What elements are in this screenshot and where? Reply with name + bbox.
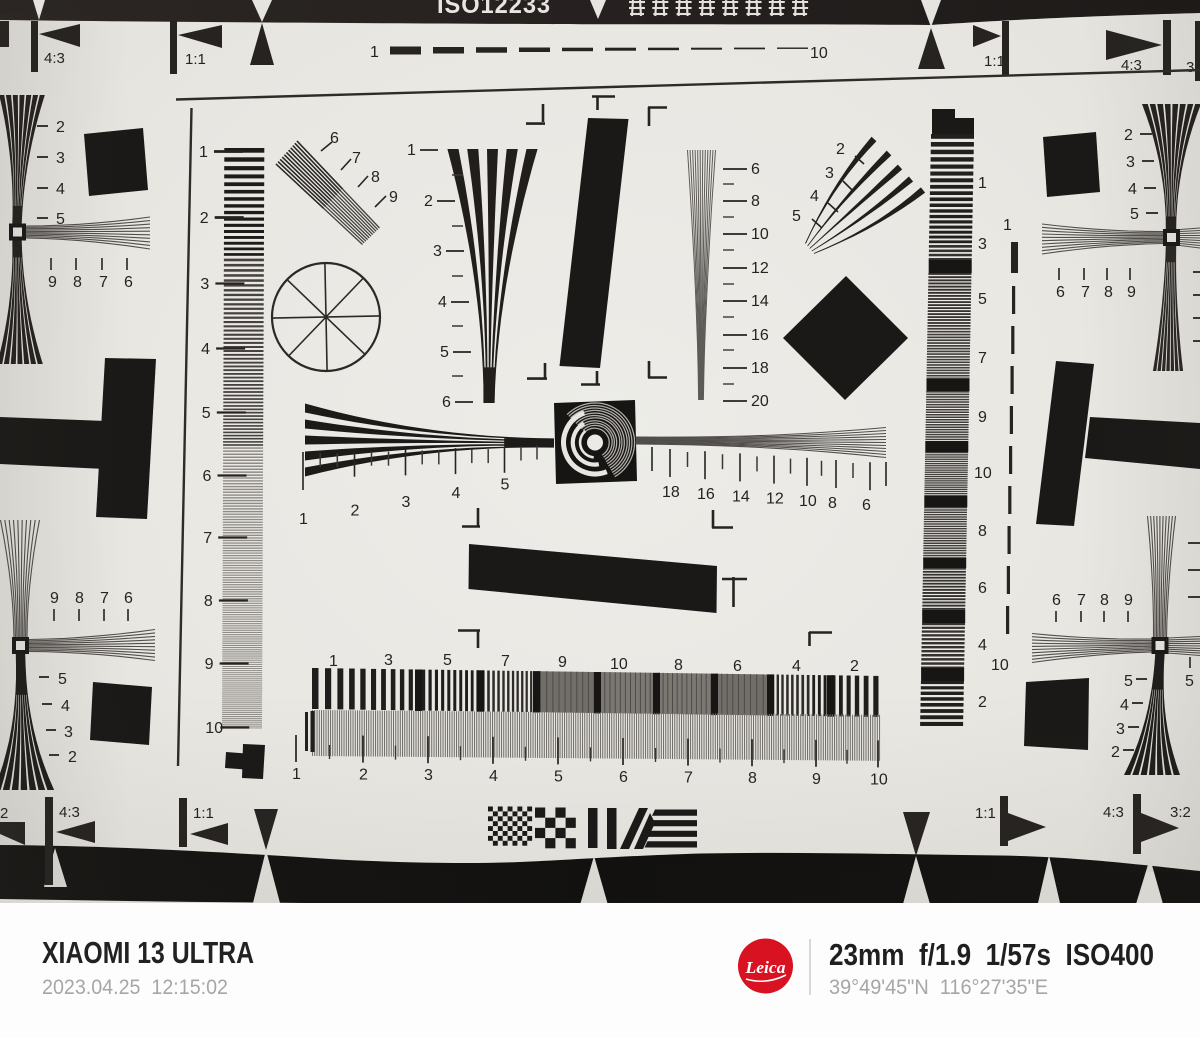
svg-text:8: 8	[978, 523, 987, 540]
svg-text:6: 6	[751, 161, 760, 178]
svg-text:7: 7	[203, 530, 212, 547]
svg-text:3: 3	[825, 165, 834, 182]
svg-text:1:1: 1:1	[185, 51, 206, 68]
svg-text:5: 5	[978, 291, 987, 308]
svg-text:14: 14	[751, 293, 769, 310]
svg-text:8: 8	[751, 193, 760, 210]
svg-text:10: 10	[991, 657, 1009, 674]
svg-text:10: 10	[810, 45, 828, 62]
svg-text:3: 3	[978, 236, 987, 253]
svg-text:6: 6	[733, 658, 742, 675]
svg-text:1: 1	[329, 653, 338, 670]
svg-text:7: 7	[352, 150, 361, 167]
svg-text:1: 1	[978, 175, 987, 192]
svg-text:8: 8	[828, 495, 837, 512]
svg-text:2: 2	[850, 658, 859, 675]
svg-text:14: 14	[732, 488, 750, 505]
svg-text:5: 5	[792, 208, 801, 225]
svg-text:2: 2	[351, 502, 360, 519]
svg-text:1: 1	[1003, 217, 1012, 234]
svg-text:8: 8	[204, 593, 213, 610]
svg-text:1: 1	[370, 44, 379, 61]
svg-text:3: 3	[200, 276, 209, 293]
svg-text:12: 12	[766, 491, 784, 508]
svg-text:1: 1	[199, 144, 208, 161]
svg-text:18: 18	[662, 484, 680, 501]
svg-text:3: 3	[384, 652, 393, 669]
svg-text:16: 16	[751, 327, 769, 344]
svg-text:5: 5	[440, 344, 449, 361]
svg-text:Leica: Leica	[744, 958, 786, 977]
svg-text:5: 5	[443, 652, 452, 669]
svg-text:4: 4	[201, 341, 210, 358]
svg-text:XIAOMI 13 ULTRA: XIAOMI 13 ULTRA	[42, 935, 254, 970]
svg-text:4: 4	[792, 658, 801, 675]
svg-text:10: 10	[610, 656, 628, 673]
svg-text:4: 4	[438, 294, 447, 311]
svg-text:9: 9	[389, 189, 398, 206]
svg-text:10: 10	[751, 226, 769, 243]
svg-text:9: 9	[558, 654, 567, 671]
svg-text:16: 16	[697, 486, 715, 503]
svg-text:4: 4	[978, 637, 987, 654]
svg-text:6: 6	[1052, 592, 1061, 609]
svg-text:2: 2	[200, 210, 209, 227]
svg-text:9: 9	[978, 409, 987, 426]
svg-text:7: 7	[501, 653, 510, 670]
svg-text:6: 6	[862, 497, 871, 514]
svg-text:20: 20	[751, 393, 769, 410]
svg-text:5: 5	[202, 405, 211, 422]
svg-text:8: 8	[371, 169, 380, 186]
svg-text:18: 18	[751, 360, 769, 377]
svg-text:8: 8	[674, 657, 683, 674]
svg-text:39°49'45"N 116°27'35"E: 39°49'45"N 116°27'35"E	[829, 975, 1048, 999]
svg-text:2: 2	[424, 193, 433, 210]
svg-text:9: 9	[205, 656, 214, 673]
svg-text:6: 6	[978, 580, 987, 597]
svg-text:10: 10	[974, 465, 992, 482]
svg-text:4: 4	[810, 188, 819, 205]
svg-text:1: 1	[299, 511, 308, 528]
svg-text:5: 5	[501, 477, 510, 494]
svg-text:7: 7	[978, 350, 987, 367]
svg-text:2: 2	[836, 141, 845, 158]
svg-text:3: 3	[402, 494, 411, 511]
svg-text:6: 6	[442, 394, 451, 411]
svg-text:1: 1	[407, 142, 416, 159]
svg-text:10: 10	[799, 493, 817, 510]
svg-text:6: 6	[330, 130, 339, 147]
svg-text:ISO12233: ISO12233	[437, 0, 551, 19]
svg-text:12: 12	[751, 260, 769, 277]
svg-text:1:1: 1:1	[984, 53, 1005, 70]
svg-text:2023.04.25 12:15:02: 2023.04.25 12:15:02	[42, 975, 228, 999]
svg-text:4: 4	[452, 485, 461, 502]
svg-text:6: 6	[203, 468, 212, 485]
svg-text:3: 3	[433, 243, 442, 260]
svg-text:6: 6	[1056, 284, 1065, 301]
svg-text:23mm f/1.9 1/57s ISO400: 23mm f/1.9 1/57s ISO400	[829, 937, 1154, 972]
